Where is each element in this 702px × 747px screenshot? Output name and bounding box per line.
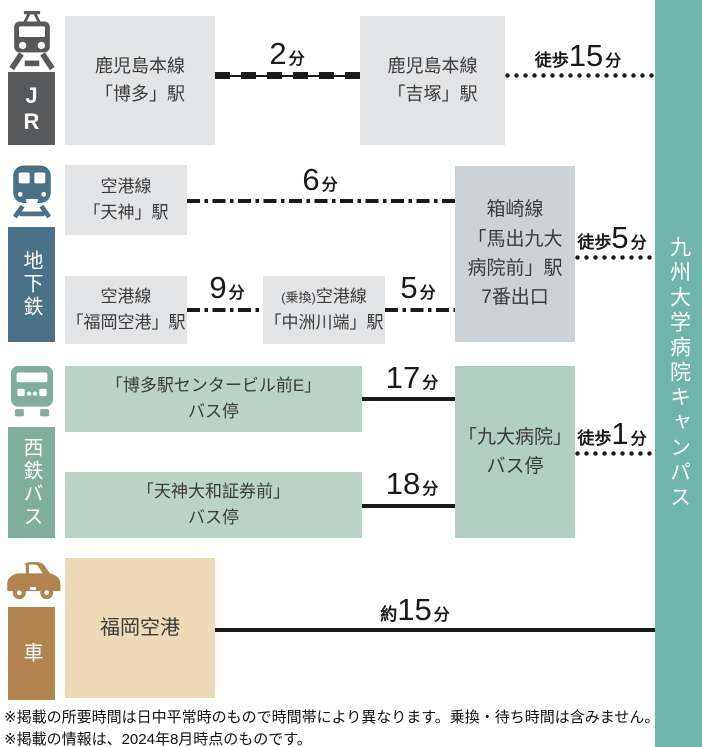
bus-line-hakata-kyudai [362,397,455,401]
transfer-note: (乗換) [281,290,316,305]
station-maidashi-line2: 「馬出九大 [467,225,562,254]
mode-label-bus: 西鉄バス [8,427,55,538]
duration-subway-tenjin: 6分 [250,164,390,195]
busstop-tenjin-line2: バス停 [188,505,239,531]
train-icon [6,10,58,72]
station-maidashi-line3: 病院前」駅 [467,254,562,283]
subway-line-nakasu-maidashi [385,308,455,312]
station-nakasu-kawabata: (乗換)空港線 「中洲川端」駅 [263,276,385,344]
duration-jr-ride: 2分 [217,38,357,69]
subway-icon [7,162,57,222]
duration-bus-tenjin: 18分 [362,468,462,499]
mode-label-car-text: 車 [17,642,46,665]
station-nakasu-line1: (乗換)空港線 [281,284,367,310]
station-tenjin: 空港線 「天神」駅 [65,165,187,235]
bus-line-tenjin-kyudai [362,504,455,508]
station-nakasu-line2: 「中洲川端」駅 [265,310,384,336]
duration-car-drive: 約15分 [345,594,485,625]
duration-bus-walk: 徒歩1分 [566,418,658,449]
station-maidashi-line4: 7番出口 [481,283,549,312]
station-tenjin-line2: 「天神」駅 [84,200,169,226]
mode-label-jr-text: J R [24,83,40,134]
busstop-tenjin-daiwa: 「天神大和証券前」 バス停 [65,472,362,538]
station-hakata-line2: 「博多」駅 [95,81,185,109]
station-hakata-line1: 鹿児島本線 [95,53,185,81]
busstop-hakata-center: 「博多駅センタービル前E」 バス停 [65,366,362,432]
station-maidashi-line1: 箱崎線 [486,195,543,224]
subway-line-airport-nakasu [187,308,263,312]
duration-jr-walk: 徒歩15分 [500,40,656,71]
walk-line-yoshizuka-campus [505,73,655,78]
station-tenjin-line1: 空港線 [101,174,152,200]
duration-bus-hakata: 17分 [362,362,462,393]
car-icon [4,554,62,604]
footnote-1: ※掲載の所要時間は日中平常時のもので時間帯により異なります。乗換・待ち時間は含み… [4,706,659,727]
station-fukuoka-airport-line1: 空港線 [101,284,152,310]
station-yoshizuka-line1: 鹿児島本線 [388,53,478,81]
walk-line-kyudai-campus [575,451,655,456]
node-fukuoka-airport-label: 福岡空港 [100,613,180,644]
station-hakata: 鹿児島本線 「博多」駅 [65,16,215,145]
busstop-tenjin-line1: 「天神大和証券前」 [137,479,290,505]
duration-subway-walk: 徒歩5分 [566,222,658,253]
mode-label-car: 車 [8,607,55,700]
destination-label: 九州大学病院キャンパス [664,236,694,511]
busstop-kyudai-hospital: 「九大病院」 バス停 [455,366,575,538]
station-yoshizuka: 鹿児島本線 「吉塚」駅 [360,16,505,145]
subway-line-tenjin-maidashi [187,199,455,203]
busstop-hakata-line1: 「博多駅センタービル前E」 [106,373,321,399]
station-fukuoka-airport: 空港線 「福岡空港」駅 [65,276,187,344]
bus-icon [6,362,58,422]
station-fukuoka-airport-line2: 「福岡空港」駅 [67,310,186,336]
node-fukuoka-airport: 福岡空港 [65,558,215,698]
duration-subway-airport: 9分 [177,272,277,303]
footnote-2: ※掲載の情報は、2024年8月時点のものです。 [4,728,312,747]
mode-label-bus-text: 西鉄バス [17,437,46,529]
mode-label-subway-text: 地下鉄 [17,250,46,319]
car-line-airport-campus [215,628,655,632]
walk-line-maidashi-campus [575,255,655,260]
busstop-kyudai-line2: バス停 [486,452,543,481]
busstop-hakata-line2: バス停 [188,399,239,425]
access-route-diagram: 九州大学病院キャンパス J R 鹿児島本線 「博多」駅 2分 鹿児島本線 「吉塚… [0,0,702,747]
destination-banner: 九州大学病院キャンパス [655,0,702,747]
mode-label-subway: 地下鉄 [8,227,55,342]
station-yoshizuka-line2: 「吉塚」駅 [388,81,478,109]
station-maidashi-kyudai: 箱崎線 「馬出九大 病院前」駅 7番出口 [455,166,575,342]
mode-label-jr: J R [8,72,55,145]
rail-line-hakata-yoshizuka [215,72,360,79]
duration-subway-nakasu: 5分 [368,272,468,303]
busstop-kyudai-line1: 「九大病院」 [458,423,572,452]
